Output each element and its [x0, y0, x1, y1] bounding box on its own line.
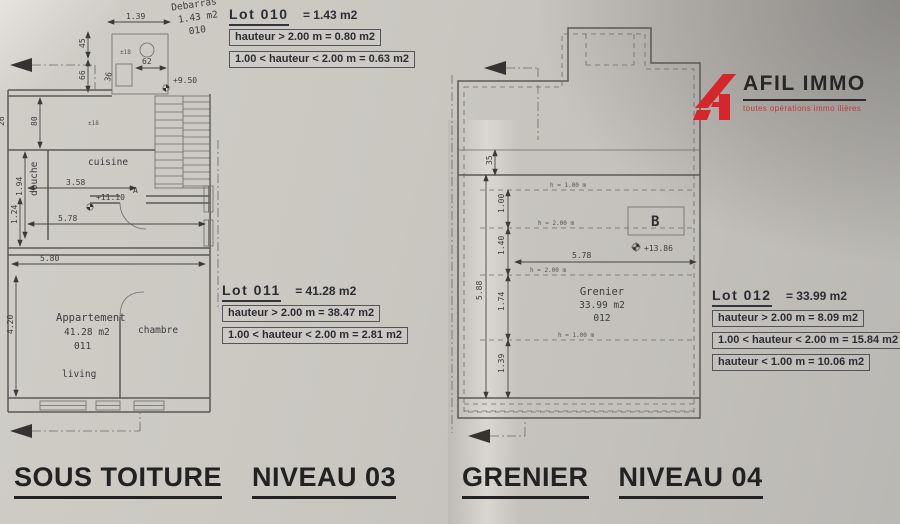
svg-text:h = 1.00 m: h = 1.00 m [550, 182, 587, 189]
lot-010-name: Lot 010 [229, 6, 289, 26]
lot-010-row: hauteur > 2.00 m = 0.80 m2 [229, 29, 381, 46]
lot-010-total: = 1.43 m2 [303, 8, 357, 22]
title-grenier: GRENIER [462, 462, 589, 499]
dim-174: 1.74 [497, 292, 506, 311]
chambre-label: chambre [138, 325, 178, 336]
lot-010-title: Lot 010 = 1.43 m2 [229, 6, 415, 24]
level-1110-label: +11.10 [96, 193, 125, 202]
dim-36: 36 [103, 71, 114, 82]
dim-578: 5.78 [58, 214, 77, 223]
dim-26: 26 [0, 116, 6, 126]
scanned-floor-plan-document: 1.39 45 66 62 36 80 26 1.94 3.58 1.24 5.… [0, 0, 900, 524]
level-marker-1386 [631, 242, 641, 252]
level-marker-1110 [87, 204, 93, 210]
level-950-label: +9.50 [173, 76, 197, 85]
walls-niveau-03 [8, 34, 218, 412]
dim-358: 3.58 [66, 178, 85, 187]
floor-plan-niveau-04: 35 1.00 1.40 1.74 1.39 5.88 5.78 h = 1.0… [450, 15, 710, 445]
level-1386-label: +13.86 [644, 244, 673, 253]
lot-012-row: hauteur > 2.00 m = 8.09 m2 [712, 310, 864, 327]
appartement-lot: 011 [74, 341, 91, 352]
afil-immo-logo: AFIL IMMO toutes opérations immo ilières [693, 72, 866, 122]
lot-011-info-box: Lot 011 = 41.28 m2 hauteur > 2.00 m = 38… [222, 282, 408, 344]
svg-text:h = 2.00 m: h = 2.00 m [538, 220, 575, 227]
lot-011-name: Lot 011 [222, 282, 281, 302]
dim-45: 45 [78, 38, 87, 48]
svg-text:010: 010 [188, 24, 207, 37]
dim-66: 66 [78, 70, 87, 80]
lot-012-total: = 33.99 m2 [786, 289, 847, 303]
afil-immo-logo-text: AFIL IMMO toutes opérations immo ilières [743, 72, 866, 113]
title-sous-toiture: SOUS TOITURE [14, 462, 222, 499]
dim-100: 1.00 [497, 194, 506, 213]
title-niveau-03-level: NIVEAU 03 [252, 462, 396, 499]
brand-name: AFIL IMMO [743, 72, 866, 101]
lot-012-title: Lot 012 = 33.99 m2 [712, 287, 900, 305]
dim-139: 1.39 [126, 12, 145, 21]
dim-578: 5.78 [572, 251, 591, 260]
lot-011-total: = 41.28 m2 [295, 284, 356, 298]
appartement-area: 41.28 m2 [64, 327, 110, 338]
lot-010-row: 1.00 < hauteur < 2.00 m = 0.63 m2 [229, 51, 415, 68]
svg-text:h = 2.00 m: h = 2.00 m [530, 267, 567, 274]
floor-plan-niveau-03: 1.39 45 66 62 36 80 26 1.94 3.58 1.24 5.… [0, 0, 230, 460]
section-cut-arrow-bottom [468, 418, 525, 443]
lot-011-row: 1.00 < hauteur < 2.00 m = 2.81 m2 [222, 327, 408, 344]
svg-text:Grenier: Grenier [580, 286, 624, 298]
section-cut-arrow-top [484, 61, 538, 140]
lot-012-name: Lot 012 [712, 287, 772, 307]
svg-text:33.99 m2: 33.99 m2 [579, 300, 625, 311]
lot-011-row: hauteur > 2.00 m = 38.47 m2 [222, 305, 380, 322]
section-cut-arrow-bottom [10, 412, 140, 438]
grenier-label: Grenier 33.99 m2 012 [579, 286, 625, 324]
dim-194: 1.94 [15, 177, 24, 196]
debarras-label: Debarras 1.43 m2 010 [171, 0, 221, 39]
title-niveau-04-level: NIVEAU 04 [619, 462, 763, 499]
height-line-labels: h = 1.00 m h = 2.00 m h = 2.00 m h = 1.0… [530, 182, 595, 339]
step-note-1: ±18 [120, 49, 131, 56]
title-niveau-03: SOUS TOITURENIVEAU 03 [14, 462, 396, 499]
living-label: living [62, 369, 96, 380]
dim-420: 4.20 [6, 315, 15, 334]
step-note-2: ±18 [88, 120, 99, 127]
lot-011-title: Lot 011 = 41.28 m2 [222, 282, 408, 300]
cuisine-label: cuisine [88, 157, 128, 168]
dim-140: 1.40 [497, 236, 506, 255]
appartement-label: Appartement [56, 312, 126, 324]
svg-text:h = 1.00 m: h = 1.00 m [558, 332, 595, 339]
dim-124: 1.24 [10, 205, 19, 224]
lot-012-info-box: Lot 012 = 33.99 m2 hauteur > 2.00 m = 8.… [712, 287, 900, 371]
door-a-label: A [133, 186, 138, 195]
dim-35: 35 [485, 155, 494, 165]
walls-niveau-04 [452, 28, 700, 433]
section-b-label: B [651, 214, 659, 230]
dim-139b: 1.39 [497, 354, 506, 373]
dim-580: 5.80 [40, 254, 59, 263]
dim-62: 62 [142, 57, 152, 66]
douche-label: douche [29, 161, 40, 196]
brand-tagline: toutes opérations immo ilières [743, 104, 866, 113]
lot-012-row: hauteur < 1.00 m = 10.06 m2 [712, 354, 870, 371]
dim-588: 5.88 [475, 281, 484, 300]
dim-80: 80 [30, 116, 39, 126]
svg-text:012: 012 [593, 313, 610, 324]
lot-012-row: 1.00 < hauteur < 2.00 m = 15.84 m2 [712, 332, 900, 349]
title-niveau-04: GRENIERNIVEAU 04 [462, 462, 763, 499]
lot-010-info-box: Lot 010 = 1.43 m2 hauteur > 2.00 m = 0.8… [229, 6, 415, 68]
afil-immo-logo-icon [693, 72, 737, 122]
level-marker-950 [163, 85, 169, 91]
